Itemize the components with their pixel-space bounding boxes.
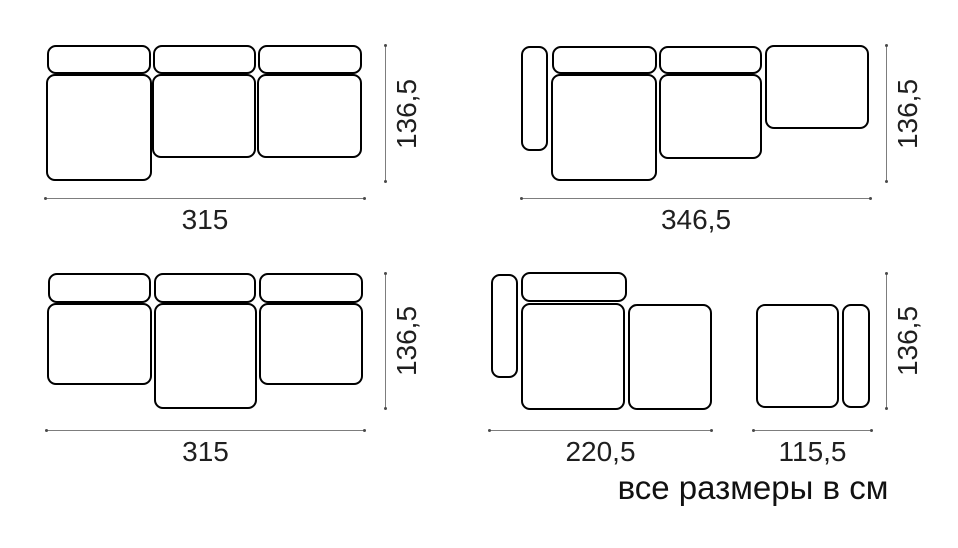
piece-side-element	[842, 304, 870, 408]
dimension-line-vertical	[385, 45, 386, 182]
dimension-line-horizontal	[46, 430, 365, 431]
dimension-line-horizontal	[489, 430, 712, 431]
piece-chaise-seat-middle	[154, 303, 257, 409]
piece-backrest-right	[259, 273, 363, 303]
piece-armrest-left	[491, 274, 518, 378]
dimension-line-vertical	[886, 45, 887, 182]
units-note: все размеры в см	[618, 471, 889, 504]
piece-backrest-middle	[153, 45, 256, 74]
piece-backrest-left	[48, 273, 151, 303]
piece-backrest-middle	[154, 273, 256, 303]
piece-seat-left	[47, 303, 152, 385]
dimension-label: 346,5	[661, 206, 731, 234]
sofa-dimension-drawing: 315136,5346,5136,5315136,5220,5115,5136,…	[0, 0, 958, 548]
dimension-line-horizontal	[753, 430, 872, 431]
piece-backrest-left	[552, 46, 657, 74]
piece-chaise-seat-left	[551, 74, 657, 181]
dimension-line-horizontal	[521, 198, 871, 199]
piece-chaise-seat-left	[46, 74, 152, 181]
piece-seat-middle	[152, 74, 256, 158]
dimension-label: 136,5	[393, 306, 421, 376]
piece-backrest-left	[47, 45, 151, 74]
piece-ottoman-square	[756, 304, 839, 408]
piece-armrest-left	[521, 46, 548, 151]
dimension-label: 115,5	[779, 438, 847, 466]
dimension-label: 136,5	[393, 78, 421, 148]
piece-backrest-right	[258, 45, 362, 74]
piece-ottoman	[628, 304, 712, 410]
dimension-label: 220,5	[565, 438, 635, 466]
piece-backrest	[521, 272, 627, 302]
dimension-line-horizontal	[45, 198, 365, 199]
dimension-line-vertical	[385, 273, 386, 409]
piece-seat-right	[259, 303, 363, 385]
piece-seat-right	[257, 74, 362, 158]
dimension-label: 136,5	[894, 306, 922, 376]
piece-seat-middle	[659, 74, 762, 159]
dimension-label: 136,5	[894, 78, 922, 148]
piece-backrest-right	[659, 46, 762, 74]
piece-chaise-seat	[521, 303, 625, 410]
dimension-label: 315	[182, 206, 229, 234]
dimension-label: 315	[182, 438, 229, 466]
piece-open-end-right	[765, 45, 869, 129]
dimension-line-vertical	[886, 273, 887, 409]
